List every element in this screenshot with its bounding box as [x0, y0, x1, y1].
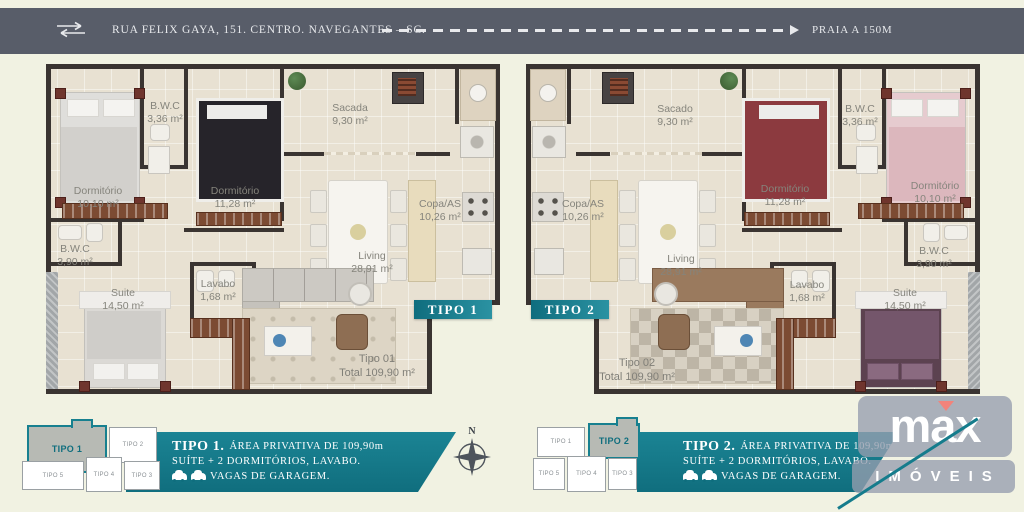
- room-label: Suite 14,50 m²: [102, 287, 143, 313]
- room-area: 14,50 m²: [884, 300, 925, 313]
- info-area: ÁREA PRIVATIVA DE 109,90m: [229, 439, 383, 454]
- grill: [610, 78, 628, 96]
- room-label: Dormitório 10,10 m²: [911, 180, 959, 206]
- pouf: [654, 282, 678, 306]
- room-area: 28,91 m²: [351, 263, 392, 276]
- wall: [455, 69, 459, 124]
- room-name: Dormitório: [211, 185, 259, 198]
- thumb-label: TIPO 2: [599, 436, 629, 446]
- kitchen-bench: [590, 180, 618, 282]
- address-text: RUA FELIX GAYA, 151. CENTRO. NAVEGANTES …: [112, 24, 426, 36]
- max-imoveis-logo-sub: IMÓVEIS: [852, 460, 1015, 493]
- header-bar: RUA FELIX GAYA, 151. CENTRO. NAVEGANTES …: [0, 8, 1024, 54]
- coffee-table: [264, 326, 312, 356]
- stove: [532, 192, 564, 222]
- plan-total-area: Total 109,90 m²: [599, 370, 675, 384]
- chair: [390, 190, 407, 213]
- room-label: B.W.C 3,36 m²: [842, 103, 878, 129]
- dashed-route-line: [382, 29, 788, 32]
- room-area: 1,68 m²: [789, 292, 825, 305]
- armchair: [658, 314, 690, 350]
- room-name: Dormitório: [761, 183, 809, 196]
- bed-post: [855, 381, 866, 392]
- toilet: [86, 223, 103, 242]
- wardrobe: [196, 212, 282, 226]
- chair: [619, 258, 636, 281]
- wall: [832, 262, 836, 318]
- chair: [699, 190, 716, 213]
- wardrobe: [744, 212, 830, 226]
- room-label: Lavabo 1,68 m²: [789, 279, 825, 305]
- wall: [190, 262, 194, 318]
- tipo1-info-box: TIPO 1. ÁREA PRIVATIVA DE 109,90m SUÍTE …: [126, 432, 456, 492]
- room-area: 10,26 m²: [419, 211, 461, 224]
- toilet: [150, 124, 170, 141]
- beach-distance-text: PRAIA A 150M: [812, 24, 893, 36]
- floorplan-tipo2: Dormitório 10,10 m² B.W.C 3,36 m² Dormit…: [526, 62, 996, 398]
- coffee-table: [714, 326, 762, 356]
- room-label: Dormitório 11,28 m²: [761, 183, 809, 209]
- floorplan-drawing: [30, 62, 500, 398]
- logo-triangle-icon: [938, 401, 954, 411]
- key-thumb-tipo4[interactable]: TIPO 4: [86, 457, 122, 492]
- room-name: Suite: [884, 287, 925, 300]
- pillow: [93, 363, 125, 380]
- room-label: B.W.C 3,90 m²: [57, 243, 93, 269]
- room-label: Living 28,91 m²: [351, 250, 392, 276]
- decor: [273, 334, 286, 347]
- wall: [118, 218, 122, 266]
- room-area: 1,68 m²: [200, 291, 236, 304]
- info-content: TIPO 1. ÁREA PRIVATIVA DE 109,90m SUÍTE …: [126, 432, 456, 484]
- thumb-label: TIPO 5: [539, 471, 560, 477]
- wall: [284, 152, 324, 156]
- chair: [310, 190, 327, 213]
- chair: [619, 190, 636, 213]
- chair: [310, 224, 327, 247]
- sink: [534, 248, 564, 275]
- wall: [742, 228, 842, 232]
- room-name: Suite: [102, 287, 143, 300]
- room-name: B.W.C: [147, 100, 183, 113]
- info-garage: VAGAS DE GARAGEM.: [721, 469, 841, 484]
- chair: [390, 224, 407, 247]
- car-icon: [172, 473, 187, 480]
- key-thumb-tipo3[interactable]: TIPO 3: [124, 461, 160, 490]
- info-title: TIPO 2.: [683, 439, 735, 454]
- room-area: 28,91 m²: [660, 266, 701, 279]
- pouf: [348, 282, 372, 306]
- plan-total-area: Total 109,90 m²: [339, 366, 415, 380]
- chair: [619, 224, 636, 247]
- room-area: 11,28 m²: [211, 198, 259, 211]
- pillow: [67, 99, 99, 117]
- plan-total-label: Tipo 01 Total 109,90 m²: [339, 352, 415, 380]
- washer: [532, 126, 566, 158]
- counter: [530, 69, 566, 121]
- hall-cabinet: [232, 318, 250, 390]
- sink: [58, 225, 82, 240]
- bed-post: [79, 381, 90, 392]
- two-way-arrows-icon: [54, 20, 88, 40]
- bed-post: [936, 381, 947, 392]
- pillow: [103, 99, 135, 117]
- grill: [398, 78, 416, 96]
- wall: [576, 152, 610, 156]
- room-area: 9,30 m²: [657, 116, 693, 129]
- bed-post: [960, 88, 971, 99]
- armchair: [336, 314, 368, 350]
- wall: [702, 152, 742, 156]
- wall: [904, 218, 908, 266]
- bed-post: [134, 88, 145, 99]
- blanket: [865, 311, 939, 359]
- room-name: Copa/AS: [419, 198, 461, 211]
- room-name: B.W.C: [57, 243, 93, 256]
- sink: [462, 248, 492, 275]
- info-title: TIPO 1.: [172, 439, 224, 454]
- room-label: Copa/AS 10,26 m²: [419, 198, 461, 224]
- wall: [184, 228, 284, 232]
- wall: [190, 262, 256, 266]
- thumb-notch: [71, 419, 93, 428]
- thumb-notch: [616, 417, 638, 426]
- room-name: Living: [351, 250, 392, 263]
- floorplan-drawing: [526, 62, 996, 398]
- room-name: Lavabo: [789, 279, 825, 292]
- room-label: Living 28,91 m²: [660, 253, 701, 279]
- compass-rose: N: [452, 426, 492, 482]
- room-name: Sacado: [657, 103, 693, 116]
- plan-total-label: Tipo 02 Total 109,90 m²: [599, 356, 675, 384]
- thumb-label: TIPO 3: [132, 473, 153, 479]
- wall: [184, 69, 188, 169]
- key-thumb-tipo5[interactable]: TIPO 5: [533, 458, 565, 490]
- plan-code: Tipo 01: [339, 352, 415, 366]
- thumb-label: TIPO 5: [43, 473, 64, 479]
- info-rooms: SUÍTE + 2 DORMITÓRIOS, LAVABO.: [172, 454, 456, 469]
- tipo2-tag: TIPO 2: [531, 300, 609, 319]
- car-icon: [191, 473, 206, 480]
- key-thumb-tipo3[interactable]: TIPO 3: [608, 458, 637, 490]
- washer: [460, 126, 494, 158]
- pillow: [891, 99, 923, 117]
- bed-post: [55, 88, 66, 99]
- room-name: Copa/AS: [562, 198, 604, 211]
- pillow: [127, 363, 159, 380]
- plant: [720, 72, 738, 90]
- room-area: 3,36 m²: [147, 113, 183, 126]
- car-icon: [683, 473, 698, 480]
- sink: [469, 84, 487, 102]
- room-name: Lavabo: [200, 278, 236, 291]
- room-label: Sacado 9,30 m²: [657, 103, 693, 129]
- compass-north-label: N: [452, 426, 492, 437]
- thumb-label: TIPO 1: [551, 439, 572, 445]
- car-icon: [702, 473, 717, 480]
- room-name: B.W.C: [916, 245, 952, 258]
- sink-vanity: [148, 146, 170, 174]
- blanket: [87, 311, 161, 359]
- wall: [140, 69, 144, 169]
- room-area: 10,10 m²: [74, 198, 122, 211]
- room-area: 3,90 m²: [57, 256, 93, 269]
- wall: [416, 152, 450, 156]
- room-label: Copa/AS 10,26 m²: [562, 198, 604, 224]
- concrete-wall: [968, 272, 980, 389]
- bed-post: [160, 381, 171, 392]
- plan-code: Tipo 02: [599, 356, 675, 370]
- info-line: VAGAS DE GARAGEM.: [172, 469, 456, 484]
- key-thumb-tipo2[interactable]: TIPO 2: [588, 423, 640, 459]
- room-area: 10,26 m²: [562, 211, 604, 224]
- sink-vanity: [856, 146, 878, 174]
- centerpiece: [660, 224, 676, 240]
- hall-cabinet: [776, 318, 794, 390]
- room-area: 14,50 m²: [102, 300, 143, 313]
- room-label: B.W.C 3,90 m²: [916, 245, 952, 271]
- room-name: Sacada: [332, 102, 368, 115]
- pillow: [927, 99, 959, 117]
- room-area: 3,36 m²: [842, 116, 878, 129]
- pillow: [867, 363, 899, 380]
- compass-star-icon: [452, 437, 492, 477]
- centerpiece: [350, 224, 366, 240]
- room-label: Dormitório 10,10 m²: [74, 185, 122, 211]
- thumb-label: TIPO 3: [612, 471, 633, 477]
- info-garage: VAGAS DE GARAGEM.: [210, 469, 330, 484]
- room-area: 11,28 m²: [761, 196, 809, 209]
- pillow: [207, 105, 267, 119]
- sink: [944, 225, 968, 240]
- counter: [460, 69, 496, 121]
- floorplan-tipo1: Dormitório 10,10 m² B.W.C 3,36 m² Dormit…: [30, 62, 500, 398]
- room-area: 3,90 m²: [916, 258, 952, 271]
- room-area: 9,30 m²: [332, 115, 368, 128]
- pillow: [901, 363, 933, 380]
- pillow: [759, 105, 819, 119]
- concrete-wall: [46, 272, 58, 389]
- sink: [539, 84, 557, 102]
- sliding-door: [610, 152, 702, 155]
- room-label: Lavabo 1,68 m²: [200, 278, 236, 304]
- route-arrow-icon: [790, 25, 799, 35]
- room-label: Suite 14,50 m²: [884, 287, 925, 313]
- wall: [567, 69, 571, 124]
- room-label: Sacada 9,30 m²: [332, 102, 368, 128]
- toilet: [923, 223, 940, 242]
- room-name: Dormitório: [74, 185, 122, 198]
- key-thumb-tipo4[interactable]: TIPO 4: [567, 456, 606, 492]
- barbecue-grill: [392, 72, 424, 104]
- sliding-door: [324, 152, 416, 155]
- thumb-label: TIPO 1: [52, 444, 82, 454]
- decor: [740, 334, 753, 347]
- key-thumb-tipo1[interactable]: TIPO 1: [537, 427, 585, 457]
- room-label: B.W.C 3,36 m²: [147, 100, 183, 126]
- room-area: 10,10 m²: [911, 193, 959, 206]
- thumb-label: TIPO 4: [94, 472, 115, 478]
- wall: [770, 262, 836, 266]
- room-name: Dormitório: [911, 180, 959, 193]
- barbecue-grill: [602, 72, 634, 104]
- kitchen-bench: [408, 180, 436, 282]
- info-line: TIPO 1. ÁREA PRIVATIVA DE 109,90m: [172, 439, 456, 454]
- bed-post: [881, 88, 892, 99]
- key-thumb-tipo5[interactable]: TIPO 5: [22, 461, 84, 490]
- room-label: Dormitório 11,28 m²: [211, 185, 259, 211]
- room-name: B.W.C: [842, 103, 878, 116]
- thumb-label: TIPO 2: [123, 442, 144, 448]
- plant: [288, 72, 306, 90]
- tipo1-tag: TIPO 1: [414, 300, 492, 319]
- stove: [462, 192, 494, 222]
- chair: [699, 224, 716, 247]
- room-name: Living: [660, 253, 701, 266]
- thumb-label: TIPO 4: [576, 471, 597, 477]
